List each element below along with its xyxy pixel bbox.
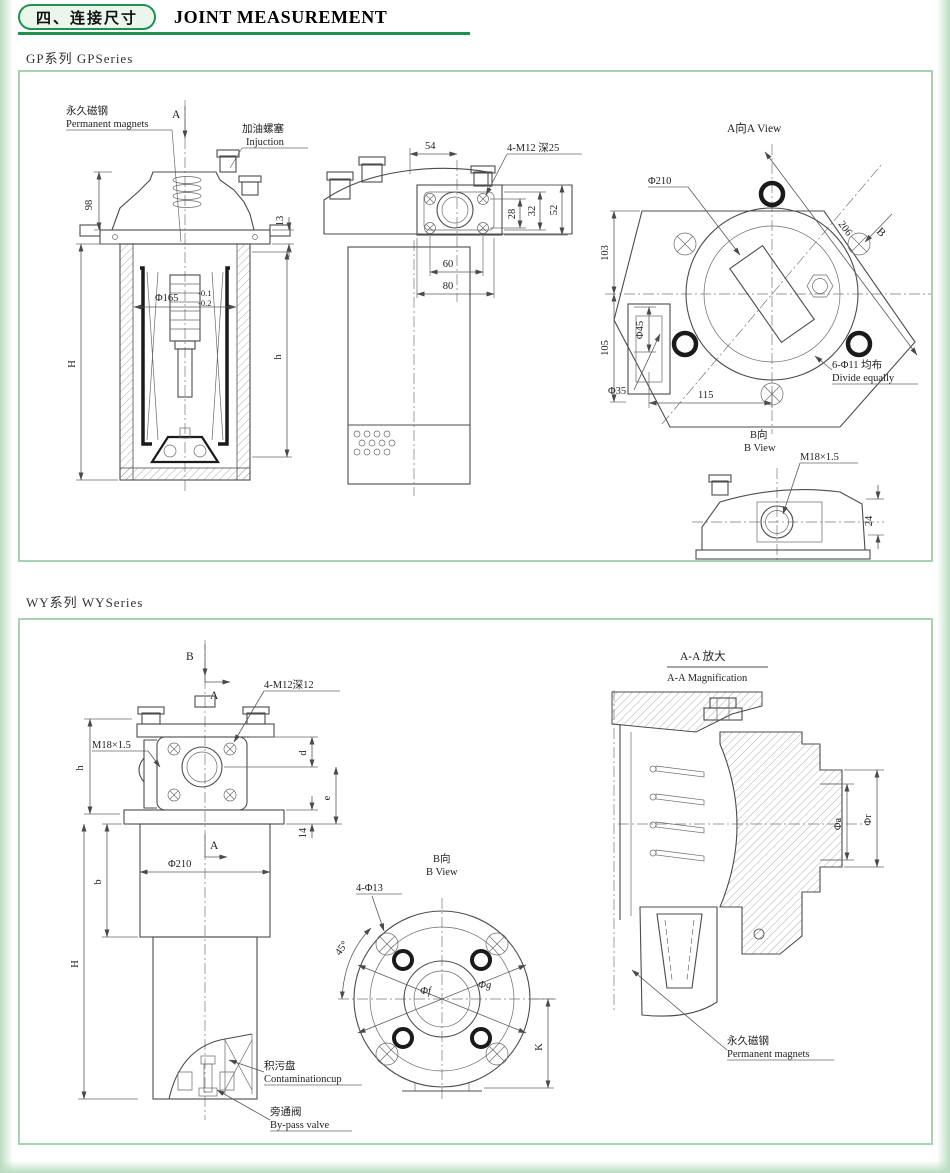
gp-front-view: 永久磁钢 Permanent magnets A 加油螺塞 Injuction [66, 100, 308, 494]
wy-dim-h: h [75, 719, 132, 814]
gp-thread-callout: M18×1.5 [783, 452, 858, 514]
svg-text:6-Φ11 均布: 6-Φ11 均布 [832, 359, 882, 371]
svg-text:积污盘: 积污盘 [264, 1059, 296, 1072]
gp-holes-callout: 6-Φ11 均布 Divide equally [815, 356, 918, 384]
wy-aa-title-cn: A-A 放大 [680, 649, 726, 663]
gp-vent-holes [354, 431, 395, 455]
svg-text:80: 80 [443, 281, 454, 292]
gp-b-view: B向 B View M18×1.5 24 [692, 428, 884, 560]
gp-b-view-title-cn: B向 [750, 428, 768, 441]
svg-text:54: 54 [425, 141, 436, 152]
svg-text:b: b [93, 879, 104, 884]
svg-text:4-M12 深25: 4-M12 深25 [507, 142, 559, 154]
svg-text:Contaminationcup: Contaminationcup [264, 1074, 342, 1085]
wy-aa-left-structure [620, 724, 704, 920]
svg-text:4-M12深12: 4-M12深12 [264, 679, 314, 691]
gp-series-label: GP系列 GPSeries [26, 48, 133, 67]
wy-drawing-panel: B A 4-M12深12 M18×1.5 A [18, 618, 933, 1145]
wy-view-b-letter: B [186, 651, 194, 663]
svg-text:永久磁钢: 永久磁钢 [727, 1034, 769, 1047]
wy-front-view: B A 4-M12深12 M18×1.5 A [70, 640, 362, 1131]
wy-thread-callout: M18×1.5 [92, 740, 160, 767]
gp-side-view: 54 4-M12 深25 28 32 52 60 80 [324, 141, 582, 496]
svg-text:Φ210: Φ210 [648, 176, 671, 187]
gp-dim-H: H [67, 244, 118, 480]
svg-text:h: h [273, 354, 284, 360]
gp-dim-103-105: 103 105 [600, 211, 640, 402]
wy-dim-phir: Φr [844, 770, 884, 867]
wy-dim-H: H [70, 824, 138, 1099]
svg-text:105: 105 [600, 340, 611, 356]
wy-dim-d: d [224, 737, 318, 767]
svg-text:H: H [70, 960, 81, 968]
svg-text:32: 32 [527, 206, 538, 217]
svg-text:M18×1.5: M18×1.5 [92, 740, 131, 751]
wy-series-label: WY系列 WYSeries [26, 592, 143, 611]
wy-drawing: B A 4-M12深12 M18×1.5 A [20, 620, 931, 1143]
page-edge-shading-right [937, 0, 950, 1173]
svg-text:K: K [534, 1043, 545, 1051]
svg-text:206: 206 [836, 219, 854, 238]
svg-text:45°: 45° [333, 939, 350, 957]
wy-valve-callout: 旁通阀 By-pass valve [217, 1090, 352, 1131]
gp-injection-plug [217, 150, 261, 195]
svg-text:28: 28 [507, 209, 518, 220]
page-edge-shading-left [0, 0, 13, 1173]
gp-magnets-label-en: Permanent magnets [66, 119, 149, 130]
gp-bolt-callout: 4-M12 深25 [486, 142, 582, 195]
section-number-badge: 四、连接尺寸 [18, 4, 156, 30]
svg-text:13: 13 [275, 216, 286, 227]
svg-text:103: 103 [600, 245, 611, 261]
svg-text:60: 60 [443, 259, 454, 270]
gp-injection-label-cn: 加油螺塞 [242, 122, 284, 135]
svg-text:Φr: Φr [863, 814, 874, 826]
gp-dim-24: 24 [864, 485, 884, 549]
wy-view-a-mid-letter: A [210, 840, 219, 852]
gp-b-view-title-en: B View [744, 443, 776, 454]
page-title: JOINT MEASUREMENT [174, 7, 387, 28]
gp-dim-98: 98 [84, 172, 112, 230]
wy-b-view: B向 B View Φf Φg 4-Φ13 45 [333, 852, 556, 1102]
wy-aa-title-en: A-A Magnification [667, 673, 748, 684]
wy-aa-view: A-A 放大 A-A Magnification [612, 649, 884, 1060]
svg-text:-0.1: -0.1 [198, 288, 211, 298]
svg-text:h: h [75, 765, 86, 771]
wy-cup-callout: 积污盘 Contaminationcup [229, 1059, 362, 1085]
svg-text:52: 52 [549, 205, 560, 216]
page-edge-shading-bottom [0, 1161, 950, 1173]
gp-a-view: A向A View Φ210 206 [600, 121, 931, 434]
badge-text: 四、连接尺寸 [36, 7, 138, 28]
gp-view-a-letter: A [172, 109, 181, 121]
svg-text:Φ45: Φ45 [635, 321, 646, 339]
svg-text:Φ35: Φ35 [608, 386, 626, 397]
wy-bolt-callout: 4-M12深12 [234, 679, 340, 742]
svg-text:H: H [67, 360, 78, 368]
wy-cup-interior [169, 1034, 252, 1099]
gp-dim-45: Φ45 [634, 307, 656, 352]
svg-text:14: 14 [298, 827, 309, 838]
svg-text:d: d [298, 750, 309, 756]
catalog-page: { "header": { "badge": "四、连接尺寸", "title"… [0, 0, 950, 1173]
gp-dim-35: Φ35 [608, 334, 660, 397]
svg-text:98: 98 [84, 200, 95, 211]
wy-dim-g: Φg [478, 980, 491, 991]
wy-dim-f: Φf [420, 986, 433, 997]
wy-b-view-title-en: B View [426, 867, 458, 878]
wy-dim-e: e [286, 767, 342, 824]
gp-magnets-label-cn: 永久磁钢 [66, 104, 108, 117]
gp-drawing-panel: 永久磁钢 Permanent magnets A 加油螺塞 Injuction [18, 70, 933, 562]
svg-text:Divide equally: Divide equally [832, 373, 895, 384]
gp-a-view-title: A向A View [727, 121, 782, 135]
wy-aa-body-block [720, 732, 842, 954]
gp-drawing: 永久磁钢 Permanent magnets A 加油螺塞 Injuction [20, 72, 931, 560]
wy-b-view-title-cn: B向 [433, 852, 451, 865]
wy-holes-callout: 4-Φ13 [356, 883, 402, 931]
svg-text:Φa: Φa [833, 817, 844, 830]
svg-text:旁通阀: 旁通阀 [270, 1105, 302, 1118]
gp-injection-label-en: Injuction [246, 137, 285, 148]
wy-magnets-callout: 永久磁钢 Permanent magnets [632, 970, 834, 1060]
svg-text:-0.2: -0.2 [198, 298, 211, 308]
header-underline [18, 32, 470, 35]
svg-text:Φ210: Φ210 [168, 859, 191, 870]
svg-text:M18×1.5: M18×1.5 [800, 452, 839, 463]
gp-dim-210: Φ210 [648, 176, 740, 255]
svg-text:B: B [874, 226, 888, 240]
wy-angle-dim: 45° [333, 928, 371, 999]
gp-dim-60-80: 60 80 [417, 236, 494, 298]
svg-text:115: 115 [698, 390, 713, 401]
svg-text:e: e [322, 795, 333, 800]
gp-dim-206: 206 [765, 152, 917, 355]
wy-dim-b: b [93, 824, 138, 937]
gp-dim-h: h [252, 252, 292, 457]
svg-text:4-Φ13: 4-Φ13 [356, 883, 383, 894]
svg-text:Permanent magnets: Permanent magnets [727, 1049, 810, 1060]
gp-dim-115: 115 [649, 372, 772, 408]
svg-text:24: 24 [864, 515, 875, 526]
wy-dim-14: 14 [286, 796, 318, 838]
gp-view-b-arrow: B [865, 214, 892, 242]
svg-text:By-pass valve: By-pass valve [270, 1120, 330, 1131]
svg-text:Φ165: Φ165 [155, 293, 178, 304]
